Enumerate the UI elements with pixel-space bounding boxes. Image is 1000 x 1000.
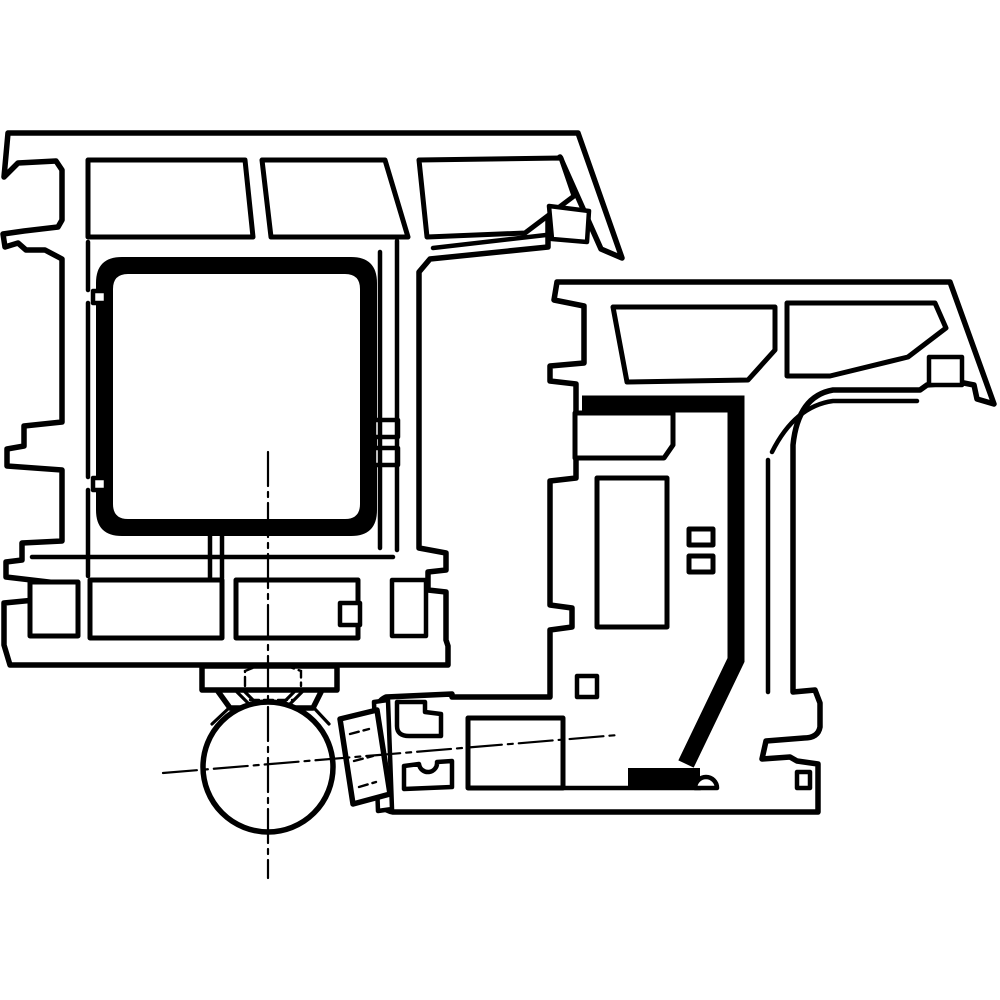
sash-steel-bar xyxy=(628,768,700,788)
drawing-canvas xyxy=(0,0,1000,1000)
profile-cross-section-drawing xyxy=(0,0,1000,1000)
